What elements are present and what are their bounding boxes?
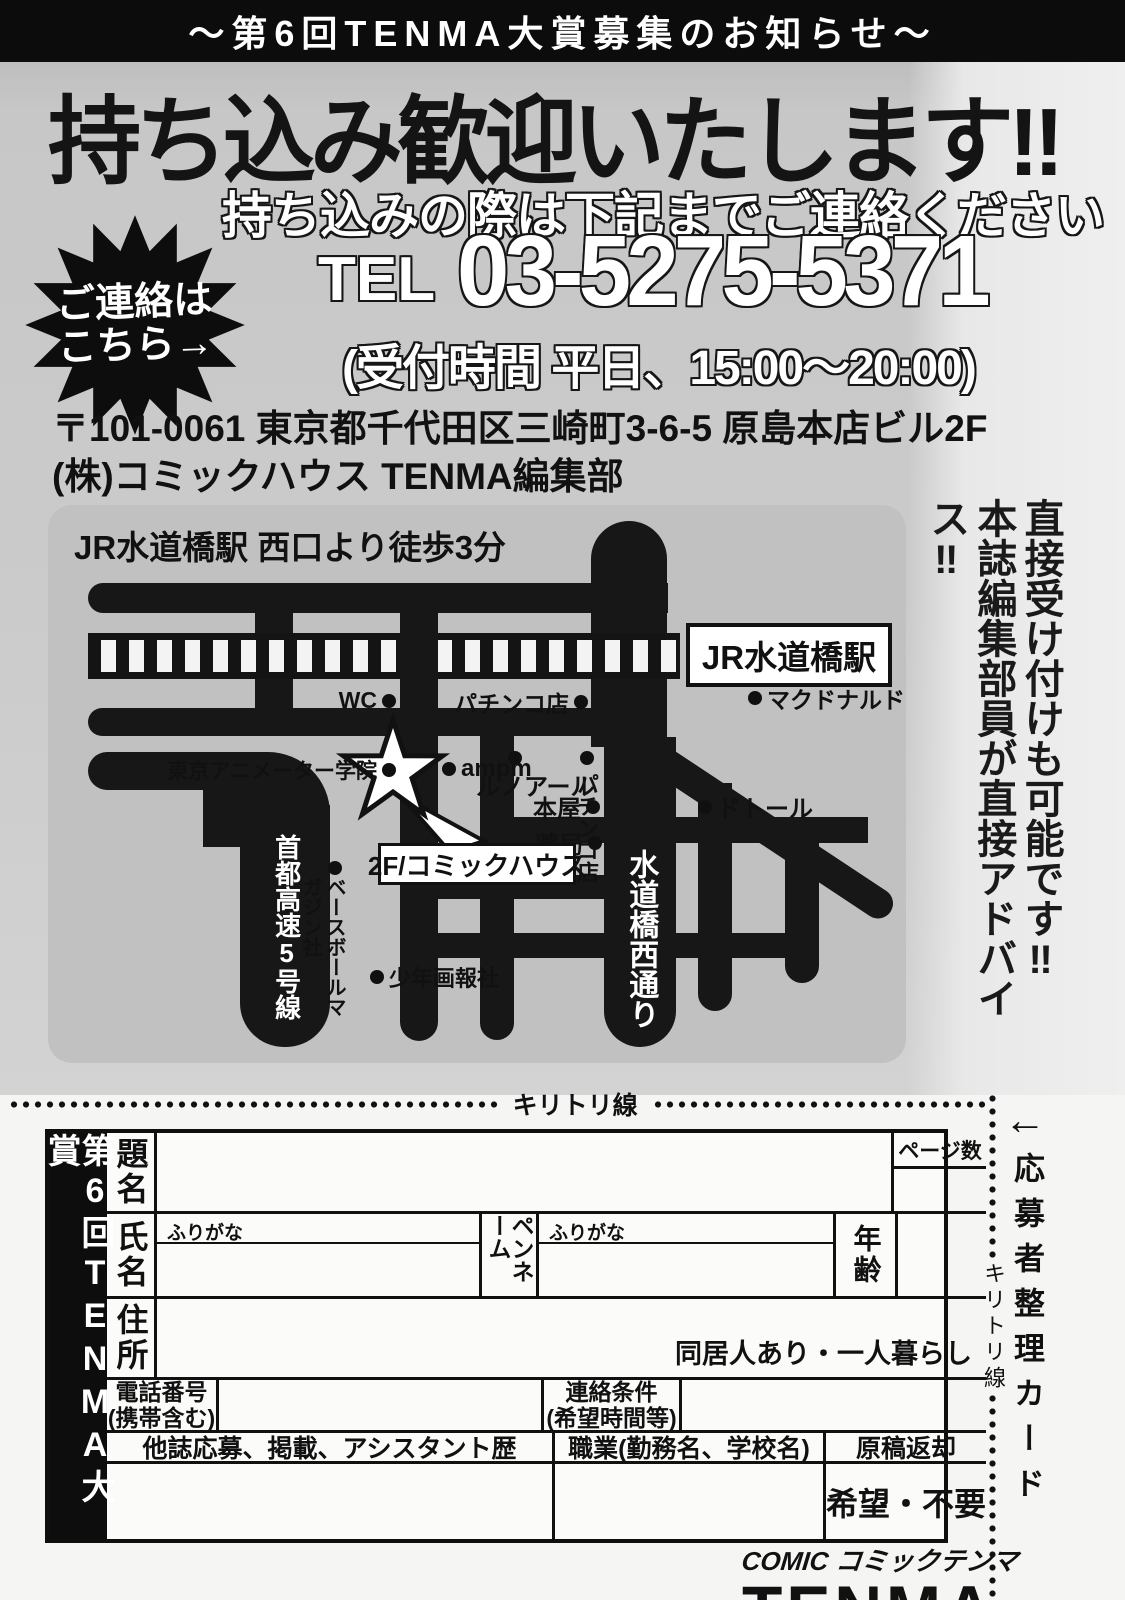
penname-input-cell: ふりがな — [539, 1214, 836, 1296]
road-top-horizontal — [88, 583, 668, 613]
phone-row: TEL 03-5275-5371 — [318, 214, 1020, 329]
phone-input-cell — [219, 1380, 544, 1430]
station-sign: JR水道橋駅 — [686, 623, 892, 687]
map-label-expressway: 首都高速5号線 — [246, 813, 326, 1041]
return-header: 原稿返却 — [826, 1433, 986, 1461]
tel-number: 03-5275-5371 — [457, 214, 986, 329]
banner-title: 〜第6回TENMA大賞募集のお知らせ〜 — [188, 5, 936, 57]
tel-label: TEL — [318, 244, 435, 315]
address-label-cell: 住所 — [107, 1299, 157, 1377]
form-title: 第6回TENMA大賞 — [44, 1133, 112, 1539]
map-office-box: 2F/コミックハウス — [378, 843, 576, 885]
form-row-bottom: 希望・不要 — [107, 1464, 986, 1539]
side-note-col2: 本誌編集部員が直接アドバイス‼ — [922, 498, 1016, 1086]
furigana-label: ふりがな — [157, 1214, 479, 1244]
form-row-phone: 電話番号 (携帯含む) 連絡条件 (希望時間等) — [107, 1380, 986, 1433]
road-vertical-e — [785, 835, 819, 983]
return-options: 希望・不要 — [826, 1464, 986, 1539]
tenma-logo: COMIC コミックテンマ TENMA — [742, 1541, 1018, 1600]
map-dot — [586, 800, 600, 814]
pages-label: ページ数 — [894, 1133, 986, 1169]
job-header: 職業(勤務名、学校名) — [555, 1433, 826, 1461]
map-dot — [382, 694, 396, 708]
age-label-cell: 年齢 — [836, 1214, 898, 1296]
penname-label-cell: ペンネーム — [482, 1214, 539, 1296]
side-note-col1: 直接受け付けも可能です‼ — [1016, 498, 1063, 1086]
map-label-doutor: ドトール — [698, 789, 813, 824]
map-label-mcdonalds: マクドナルド — [748, 681, 905, 715]
map-dot-renoir — [508, 751, 522, 765]
address-line2: (株)コミックハウス TENMA編集部 — [52, 446, 624, 500]
living-note: 同居人あり・一人暮らし — [675, 1332, 972, 1371]
map-dot — [588, 836, 602, 850]
map-dot — [698, 800, 712, 814]
map-label-animator-school: 東京アニメーター学院 — [143, 755, 396, 785]
burst-line2: こちら→ — [57, 322, 214, 370]
railway-track — [88, 633, 680, 679]
form-title-column: 第6回TENMA大賞 — [49, 1133, 107, 1539]
map-label-pachinko1: パチンコ店 — [448, 685, 588, 719]
form-row-name: 氏名 ふりがな ペンネーム ふりがな 年齢 — [107, 1214, 986, 1299]
map-title: JR水道橋駅 西口より徒歩3分 — [74, 521, 506, 569]
side-note: 直接受け付けも可能です‼ 本誌編集部員が直接アドバイス‼ — [922, 498, 1064, 1086]
history-header: 他誌応募、掲載、アシスタント歴 — [107, 1433, 555, 1461]
address-line1: 〒101-0061 東京都千代田区三崎町3-6-5 原島本店ビル2F — [52, 398, 987, 452]
map-dot — [442, 762, 456, 776]
form-row-title: 題名 ページ数 — [107, 1133, 986, 1214]
history-input-cell — [107, 1464, 555, 1539]
dotted-line — [652, 1101, 990, 1108]
title-label-cell: 題名 — [107, 1133, 157, 1211]
horizontal-cut-line: キリトリ線 — [8, 1086, 990, 1122]
magazine-page: 〜第6回TENMA大賞募集のお知らせ〜 持ち込み歓迎いたします!! 持ち込みの際… — [0, 0, 1125, 1600]
tel-hours: (受付時間 平日、15:00〜20:00) — [342, 328, 975, 398]
name-input-cell: ふりがな — [157, 1214, 482, 1296]
dotted-line — [8, 1101, 499, 1108]
map-dot — [748, 691, 762, 705]
left-arrow-icon: ← — [1004, 1096, 1046, 1144]
burst-line1: ご連絡は — [56, 279, 213, 327]
map-dot-baseball — [328, 861, 342, 875]
map-dot — [574, 695, 588, 709]
map-dot-pachinko2 — [580, 751, 594, 765]
pages-input-cell — [894, 1169, 986, 1211]
application-form: 第6回TENMA大賞 題名 ページ数 氏名 ふりがな — [45, 1129, 948, 1543]
map-dot — [382, 763, 396, 777]
vertical-cut-line-top — [989, 1092, 996, 1258]
form-grid: 題名 ページ数 氏名 ふりがな ペンネーム — [107, 1133, 986, 1539]
form-row-headers: 他誌応募、掲載、アシスタント歴 職業(勤務名、学校名) 原稿返却 — [107, 1433, 986, 1464]
map-label-wc: WC — [318, 687, 396, 714]
furigana-label: ふりがな — [539, 1214, 833, 1244]
top-banner: 〜第6回TENMA大賞募集のお知らせ〜 — [0, 0, 1125, 62]
address-input-cell: 同居人あり・一人暮らし — [157, 1299, 986, 1377]
form-row-address: 住所 同居人あり・一人暮らし — [107, 1299, 986, 1380]
job-input-cell — [555, 1464, 826, 1539]
name-label-cell: 氏名 — [107, 1214, 157, 1296]
pages-cell: ページ数 — [891, 1133, 986, 1211]
map-label-shonen-gahosha: 少年画報社 — [370, 961, 499, 993]
cut-line-label: キリトリ線 — [513, 1086, 638, 1122]
map-dot — [370, 970, 384, 984]
map-label-bookstore: 本屋 — [508, 789, 600, 824]
age-input-cell — [898, 1214, 986, 1296]
logo-main-line: TENMA — [742, 1578, 1018, 1600]
phone-label-cell: 電話番号 (携帯含む) — [107, 1380, 219, 1430]
contact-label-cell: 連絡条件 (希望時間等) — [544, 1380, 682, 1430]
title-input-cell — [157, 1133, 891, 1211]
access-map: JR水道橋駅 西口より徒歩3分 JR水道橋駅 WC パチンコ店 マクドナルド — [48, 505, 906, 1063]
entry-card-label: 応募者整理カード — [1004, 1152, 1049, 1587]
map-label-street: 水道橋西通り — [608, 833, 672, 1045]
contact-input-cell — [682, 1380, 986, 1430]
